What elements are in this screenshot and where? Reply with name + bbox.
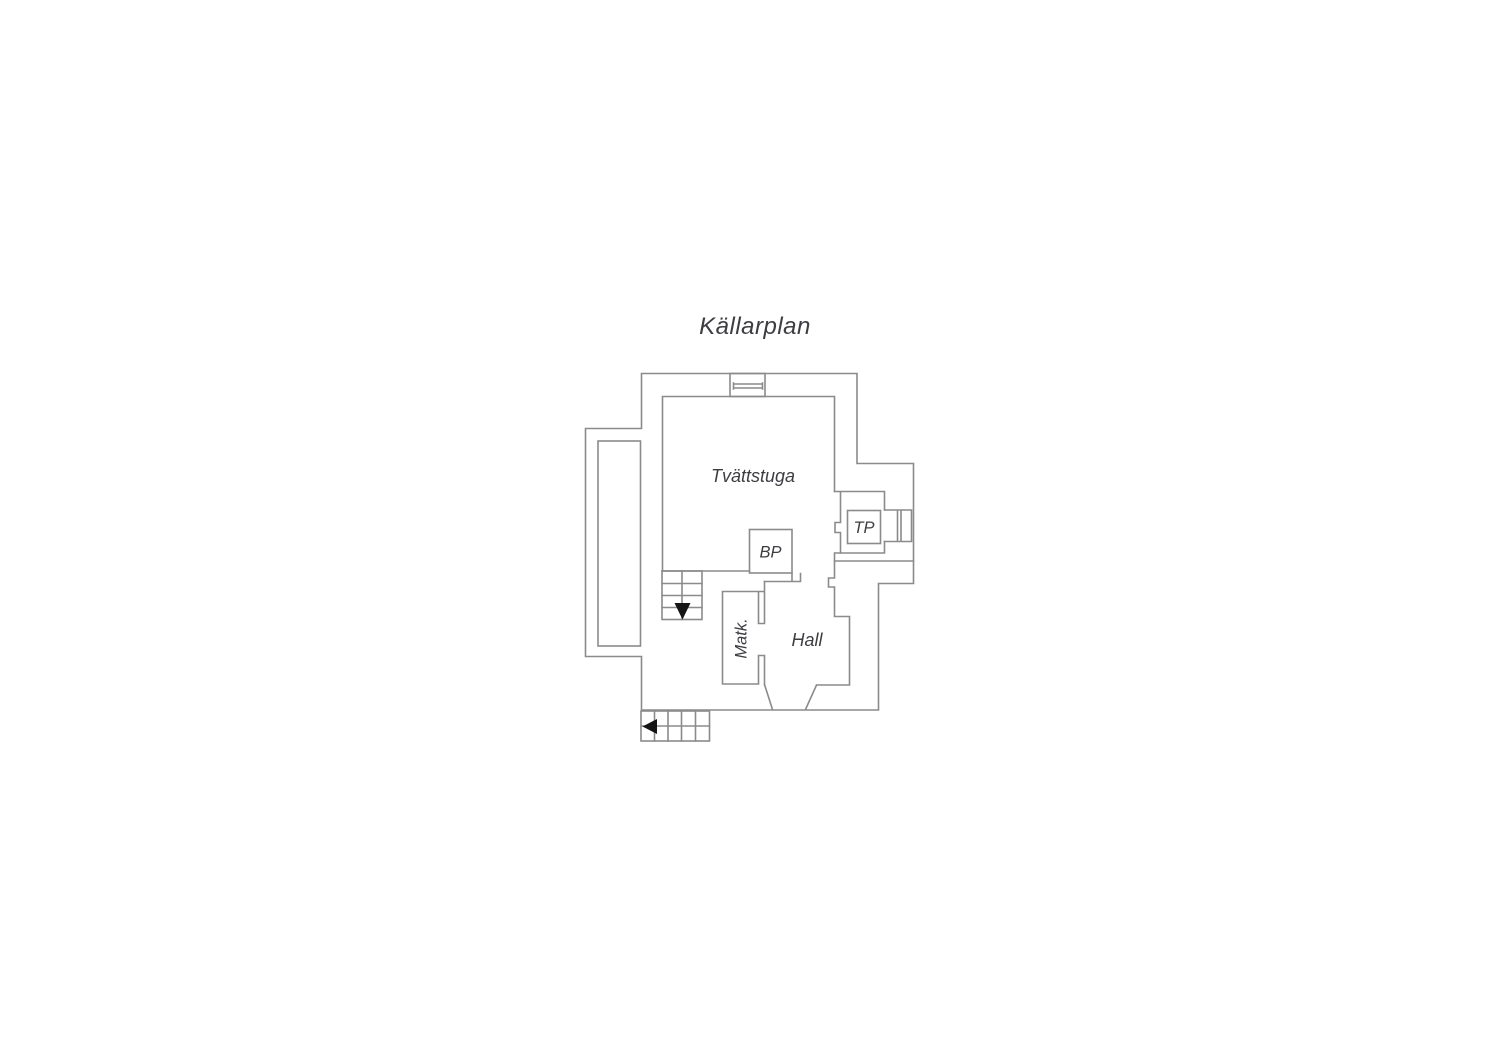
floorplan-walls xyxy=(586,374,914,742)
floorplan-drawing: Källarplan Tvättstuga BP TP Hall Matk. xyxy=(0,0,1500,1060)
left-lightwell xyxy=(598,441,641,646)
stair-arrows xyxy=(643,603,691,734)
room-label-tp: TP xyxy=(853,519,874,537)
room-label-bp: BP xyxy=(759,544,781,562)
floorplan-page: Källarplan Tvättstuga BP TP Hall Matk. xyxy=(0,0,1500,1060)
hall-north-wall xyxy=(765,573,801,582)
down-arrow-icon xyxy=(675,603,691,620)
top-window-symbol xyxy=(730,374,765,397)
room-label-laundry: Tvättstuga xyxy=(711,466,795,486)
page-title: Källarplan xyxy=(699,313,811,340)
right-window-symbol xyxy=(885,510,912,542)
room-label-hall: Hall xyxy=(791,630,823,650)
left-arrow-icon xyxy=(643,719,658,734)
room-label-matk: Matk. xyxy=(733,618,751,658)
